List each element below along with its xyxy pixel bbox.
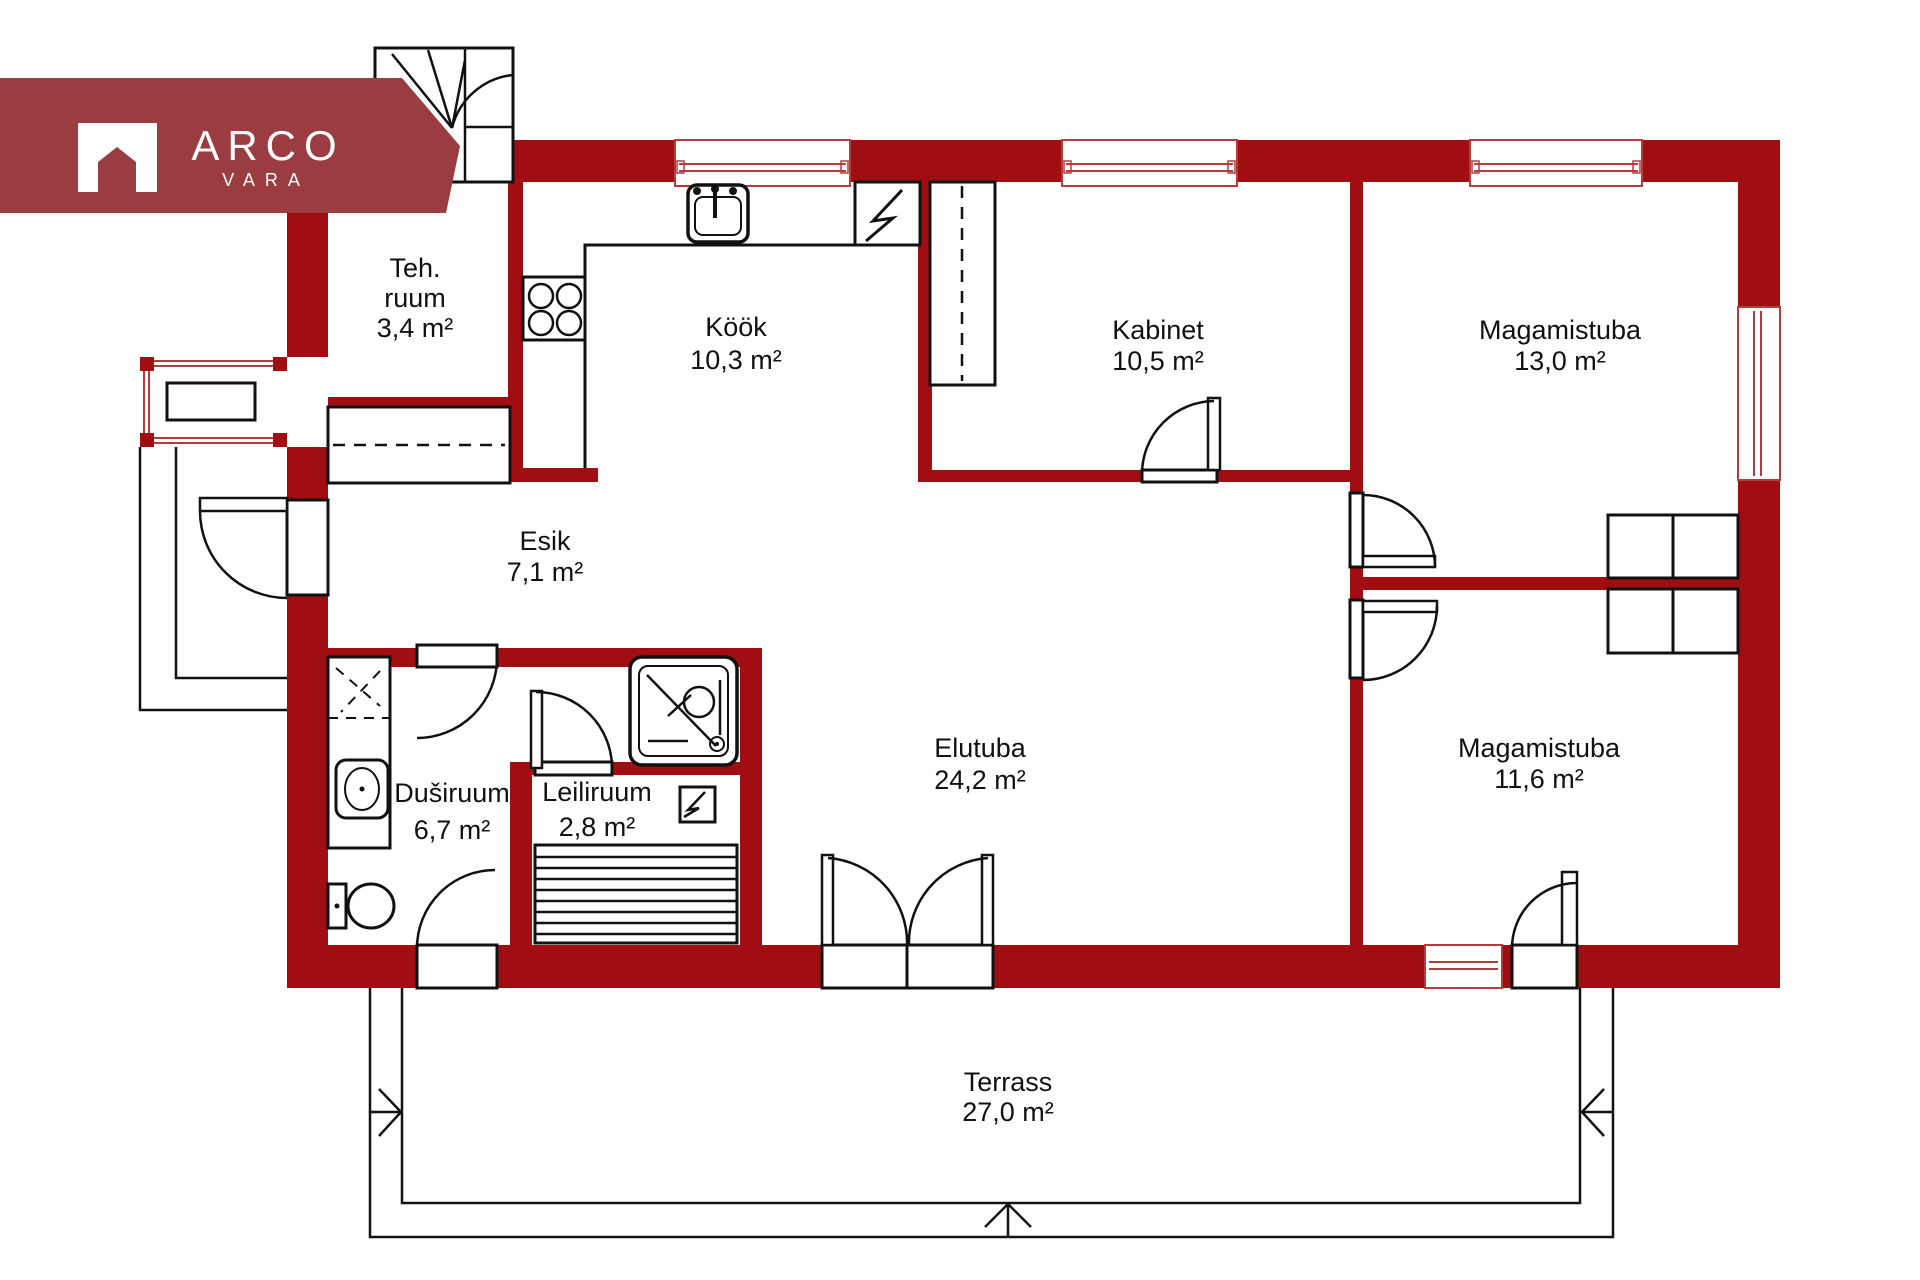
room-name: Leiliruum	[542, 777, 652, 807]
room-name: Duširuum	[394, 778, 510, 808]
hall-closet-icon	[328, 407, 510, 483]
room-area: 13,0 m²	[1514, 346, 1606, 376]
room-label-magamistuba-top: Magamistuba 13,0 m²	[1479, 315, 1642, 376]
room-area: 27,0 m²	[962, 1097, 1054, 1127]
terrace-entry-arrow-bottom	[985, 1203, 1031, 1236]
entry-porch-outline	[140, 447, 287, 710]
bedroom-terrace-door	[1512, 872, 1577, 988]
window-bedroom-right	[1738, 307, 1780, 480]
shower-tray-icon	[630, 657, 737, 765]
terrace-entry-arrow-right	[1582, 1089, 1613, 1136]
toilet-icon	[328, 884, 394, 928]
electrical-panel-icon	[855, 182, 920, 245]
sauna-bench-icon	[535, 845, 737, 943]
room-label-terrass: Terrass 27,0 m²	[962, 1067, 1054, 1127]
wardrobe-icon-top	[1608, 515, 1738, 578]
bedroom-top-door	[1350, 493, 1435, 567]
room-area: 11,6 m²	[1494, 764, 1584, 794]
bay-table-icon	[167, 383, 255, 420]
stove-icon	[523, 277, 585, 340]
porch-outer-line	[140, 447, 287, 710]
room-name: Terrass	[964, 1067, 1053, 1097]
shower-room-door	[417, 645, 497, 738]
sink-icon	[688, 185, 748, 242]
bay-window	[140, 357, 328, 447]
terrace-entry-arrow-left	[370, 1089, 401, 1136]
washbasin-icon	[336, 760, 388, 818]
room-area: 10,5 m²	[1112, 346, 1204, 376]
brand-name: ARCO	[191, 122, 344, 169]
room-label-kabinet: Kabinet 10,5 m²	[1112, 315, 1204, 376]
porch-inner-line	[176, 447, 287, 678]
room-label-teh-ruum: Teh. ruum 3,4 m²	[377, 253, 454, 343]
living-room-double-door	[822, 855, 993, 988]
room-area: 24,2 m²	[934, 765, 1026, 795]
bedroom-bottom-door	[1350, 600, 1437, 680]
sauna-door	[531, 691, 612, 775]
doors	[200, 398, 1577, 988]
room-area: 3,4 m²	[377, 313, 454, 343]
room-name: Teh.	[389, 253, 440, 283]
window-kitchen	[675, 140, 850, 186]
sauna-heater-icon	[680, 787, 715, 822]
room-area: 7,1 m²	[507, 557, 584, 587]
room-name: Kabinet	[1112, 315, 1204, 345]
window-bedroom-top	[1470, 140, 1642, 186]
room-name: Magamistuba	[1479, 315, 1642, 345]
wardrobe-icon-bottom	[1608, 589, 1738, 653]
arco-vara-logo-icon	[78, 123, 157, 192]
front-door	[200, 498, 328, 598]
room-label-esik: Esik 7,1 m²	[507, 526, 584, 587]
room-label-elutuba: Elutuba 24,2 m²	[934, 733, 1027, 795]
window-bedroom-bottom	[1425, 945, 1502, 988]
room-label-dusiruum: Duširuum 6,7 m²	[394, 778, 510, 845]
room-area: 2,8 m²	[559, 812, 636, 842]
room-name: Köök	[705, 312, 767, 342]
room-name: Elutuba	[934, 733, 1027, 763]
window-kabinet	[1062, 140, 1237, 186]
room-name: Magamistuba	[1458, 733, 1621, 763]
room-label-leiliruum: Leiliruum 2,8 m²	[542, 777, 652, 842]
floor-plan-page: Teh. ruum 3,4 m² Köök 10,3 m² Kabinet 10…	[0, 0, 1920, 1280]
room-area: 6,7 m²	[414, 815, 491, 845]
room-name: Esik	[519, 526, 571, 556]
room-area: 10,3 m²	[690, 345, 782, 375]
floor-plan: Teh. ruum 3,4 m² Köök 10,3 m² Kabinet 10…	[0, 0, 1920, 1280]
shower-room-exterior-door	[417, 870, 497, 988]
room-labels: Teh. ruum 3,4 m² Köök 10,3 m² Kabinet 10…	[377, 253, 1642, 1127]
tall-cabinet-icon	[930, 182, 995, 385]
room-label-kook: Köök 10,3 m²	[690, 312, 782, 375]
room-label-magamistuba-bottom: Magamistuba 11,6 m²	[1458, 733, 1621, 794]
room-name: ruum	[384, 283, 446, 313]
brand-banner: ARCO VARA	[0, 78, 460, 213]
kabinet-door	[1142, 398, 1220, 482]
brand-subname: VARA	[222, 170, 310, 190]
